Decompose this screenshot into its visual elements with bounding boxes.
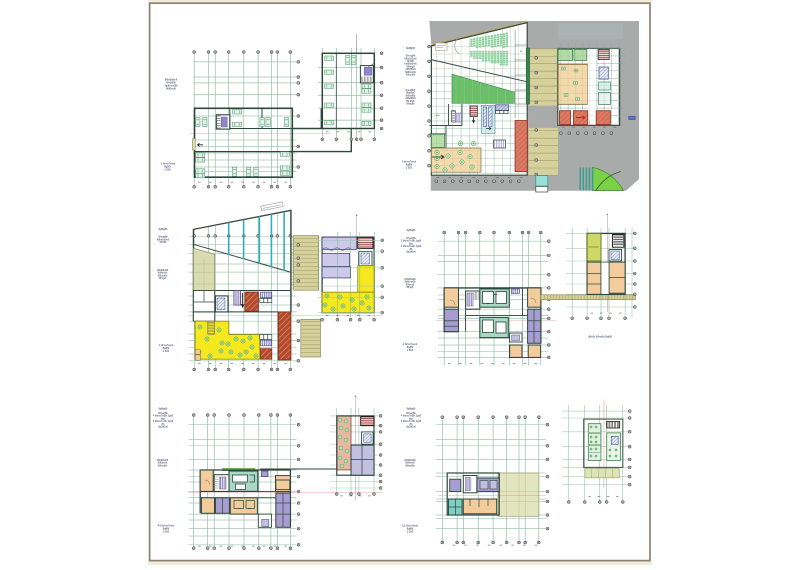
svg-text:1:500: 1:500	[164, 168, 171, 172]
svg-text:1:500: 1:500	[407, 530, 414, 534]
svg-text:8gf8g86: 8gf8g86	[159, 408, 168, 411]
svg-text:d8fo6o 98fmd6ol 8g86f: d8fo6o 98fmd6ol 8g86f	[588, 337, 612, 339]
svg-text:86f6md6: 86f6md6	[166, 87, 176, 90]
svg-text:1:500: 1:500	[163, 530, 170, 534]
svg-text:1:500: 1:500	[163, 349, 170, 353]
svg-text:6f6md6b: 6f6md6b	[406, 74, 416, 77]
svg-text:6g3d6o6: 6g3d6o6	[158, 426, 168, 429]
svg-text:8gf8g86: 8gf8g86	[406, 47, 415, 50]
svg-text:6g3d6o6: 6g3d6o6	[406, 426, 416, 429]
svg-text:8gf8g86: 8gf8g86	[159, 228, 168, 231]
svg-text:8fmg6: 8fmg6	[407, 286, 414, 289]
svg-text:1:500: 1:500	[407, 348, 414, 352]
svg-text:6g3d6o6: 6g3d6o6	[406, 251, 416, 254]
svg-text:8gf8g86: 8gf8g86	[407, 229, 416, 232]
svg-text:6f6md6b: 6f6md6b	[405, 464, 415, 467]
svg-text:8gf8g86: 8gf8g86	[407, 408, 416, 411]
svg-text:a 8fde: a 8fde	[434, 115, 439, 117]
svg-text:6f6md6b: 6f6md6b	[158, 464, 168, 467]
svg-text:6fm8b: 6fm8b	[160, 241, 167, 244]
svg-text:1:500: 1:500	[406, 166, 413, 170]
svg-text:8fmg6: 8fmg6	[159, 277, 166, 280]
svg-text:8fmg6b: 8fmg6b	[406, 103, 415, 106]
